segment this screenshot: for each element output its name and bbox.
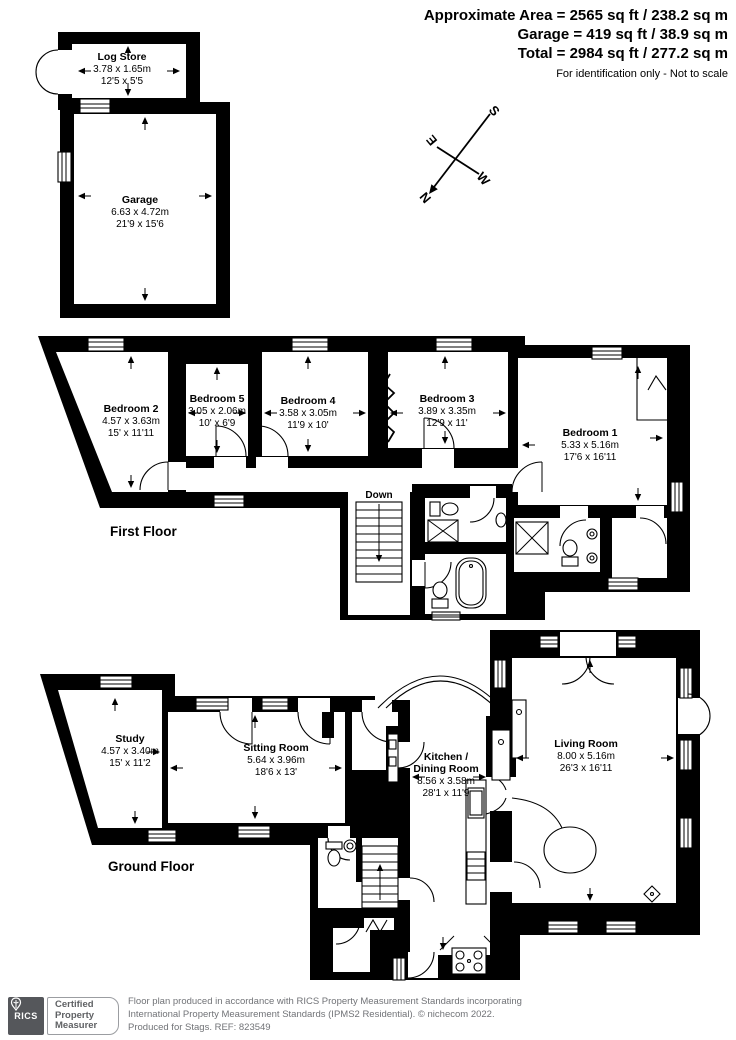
sitting-room-chimney xyxy=(322,712,334,738)
certified-property-measurer-badge: Certified Property Measurer xyxy=(47,997,119,1035)
stairs-down-label: Down xyxy=(365,490,392,501)
garage-metric: 6.63 x 4.72m xyxy=(111,207,169,218)
bedroom2-imperial: 15' x 11'11 xyxy=(108,428,155,439)
stairs-ground-floor xyxy=(362,846,398,908)
shower-2 xyxy=(516,522,548,554)
gf-toilet-cistern xyxy=(326,842,342,849)
kitchen-metric: 8.56 x 3.58m xyxy=(417,776,475,787)
footer-line2: International Property Measurement Stand… xyxy=(128,1008,522,1021)
sitting-room-imperial: 18'6 x 13' xyxy=(255,767,297,778)
bedroom5-metric: 3.05 x 2.06m xyxy=(188,406,246,417)
garage-imperial: 21'9 x 15'6 xyxy=(116,219,164,230)
gf-toilet-bowl xyxy=(328,850,340,866)
rics-lyre-icon xyxy=(8,997,24,1011)
garage-name: Garage xyxy=(122,194,158,206)
bedroom4-metric: 3.58 x 3.05m xyxy=(279,408,337,419)
toilet-cistern xyxy=(430,502,440,516)
bedroom3-name: Bedroom 3 xyxy=(420,393,475,405)
sitting-room-name: Sitting Room xyxy=(243,742,308,754)
first-floor-label: First Floor xyxy=(110,524,177,539)
bedroom4-imperial: 11'9 x 10' xyxy=(287,420,329,431)
chimney-unit xyxy=(512,700,526,758)
bedroom1-name: Bedroom 1 xyxy=(563,427,618,439)
living-room-imperial: 26'3 x 16'11 xyxy=(560,763,613,774)
rics-logo: RICS xyxy=(8,997,44,1035)
study-name: Study xyxy=(115,733,144,745)
log-store-name: Log Store xyxy=(98,51,147,63)
pedestal-basin-1 xyxy=(432,582,448,608)
bedroom2-metric: 4.57 x 3.63m xyxy=(102,416,160,427)
footer-line1: Floor plan produced in accordance with R… xyxy=(128,995,522,1008)
footer-line3: Produced for Stags. REF: 823549 xyxy=(128,1021,522,1034)
footer-disclaimer: Floor plan produced in accordance with R… xyxy=(128,995,522,1034)
pedestal-basin-2 xyxy=(562,540,578,566)
gf-basin xyxy=(344,840,356,852)
study-metric: 4.57 x 3.40m xyxy=(101,746,159,757)
bedroom1-imperial: 17'6 x 16'11 xyxy=(564,452,617,463)
log-store-imperial: 12'5 x 5'5 xyxy=(101,76,144,87)
bathtub xyxy=(456,558,486,608)
wall-basin xyxy=(496,513,506,527)
bedroom3-metric: 3.89 x 3.35m xyxy=(418,406,476,417)
rics-label: RICS xyxy=(14,1012,38,1021)
bedroom5-imperial: 10' x 6'9 xyxy=(199,418,236,429)
compass-rose: S E W N xyxy=(417,103,504,207)
kitchen-name-line2: Dining Room xyxy=(413,763,478,775)
living-room-name: Living Room xyxy=(554,738,618,750)
bedroom3-imperial: 12'9 x 11' xyxy=(426,418,468,429)
living-room-metric: 8.00 x 5.16m xyxy=(557,751,615,762)
compass-east: E xyxy=(423,132,440,149)
kitchen-name-line1: Kitchen / xyxy=(424,751,468,763)
log-store-metric: 3.78 x 1.65m xyxy=(93,64,151,75)
chimney-recess xyxy=(492,730,510,780)
sitting-room-metric: 5.64 x 3.96m xyxy=(247,755,305,766)
stove xyxy=(452,948,486,974)
floorplan-page: Approximate Area = 2565 sq ft / 238.2 sq… xyxy=(0,0,736,1040)
toilet-bowl xyxy=(442,503,458,515)
aga-recess xyxy=(388,734,398,782)
bedroom5-name: Bedroom 5 xyxy=(190,393,245,405)
study-imperial: 15' x 11'2 xyxy=(109,758,151,769)
bedroom2-name: Bedroom 2 xyxy=(104,403,159,415)
kitchen-imperial: 28'1 x 11'9 xyxy=(422,788,469,799)
stairs-first-floor xyxy=(356,502,402,582)
shower-1 xyxy=(428,520,458,542)
bedroom4-name: Bedroom 4 xyxy=(281,395,336,407)
floorplan-drawing: S E W N xyxy=(0,0,736,1040)
badge-line3: Measurer xyxy=(55,1021,118,1032)
bedroom1-metric: 5.33 x 5.16m xyxy=(561,440,619,451)
stairs-up-label: Up xyxy=(382,907,395,918)
ground-floor-label: Ground Floor xyxy=(108,859,195,874)
